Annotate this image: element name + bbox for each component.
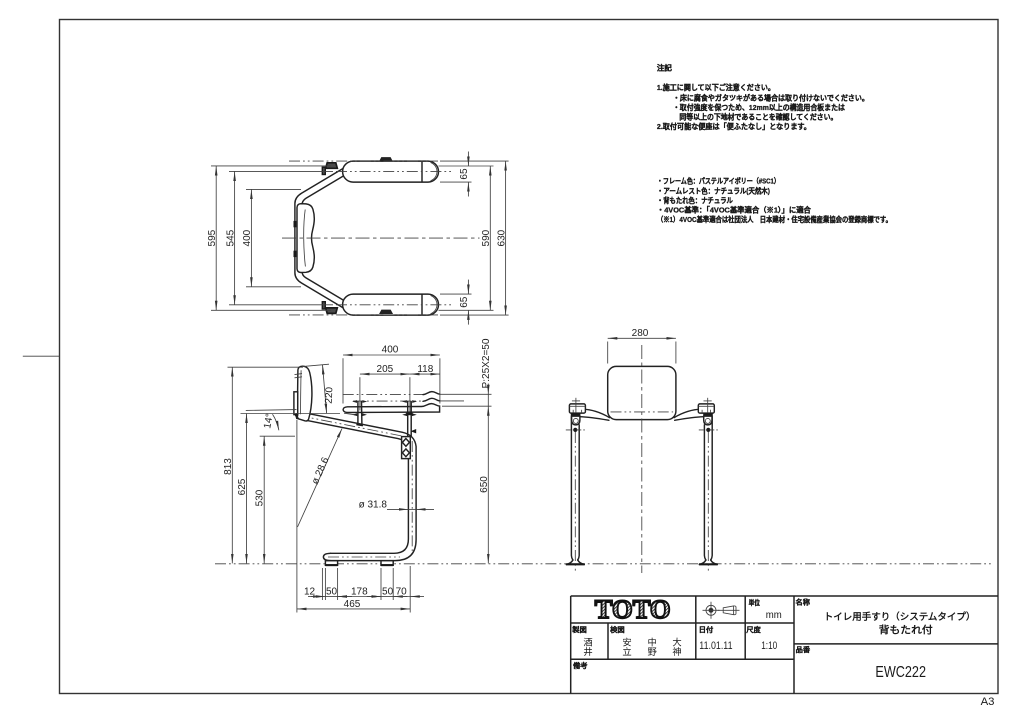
svg-text:1:10: 1:10 bbox=[761, 640, 777, 652]
svg-text:・背もたれ色：ナチュラル: ・背もたれ色：ナチュラル bbox=[657, 196, 734, 205]
svg-text:安: 安 bbox=[622, 636, 631, 647]
svg-text:立: 立 bbox=[622, 646, 631, 657]
svg-text:トイレ用手すり（システムタイプ）: トイレ用手すり（システムタイプ） bbox=[824, 611, 976, 623]
svg-text:・取付強度を保つため、12mm以上の構造用合板または: ・取付強度を保つため、12mm以上の構造用合板または bbox=[673, 103, 845, 112]
svg-text:205: 205 bbox=[377, 364, 394, 375]
svg-text:220: 220 bbox=[324, 386, 336, 404]
svg-text:650: 650 bbox=[479, 476, 490, 493]
svg-text:400: 400 bbox=[242, 229, 253, 246]
svg-text:尺度: 尺度 bbox=[746, 625, 761, 634]
svg-text:検図: 検図 bbox=[610, 625, 625, 634]
svg-text:813: 813 bbox=[223, 458, 234, 475]
svg-text:単位: 単位 bbox=[749, 598, 761, 607]
svg-text:野: 野 bbox=[648, 647, 657, 657]
svg-text:mm: mm bbox=[766, 609, 782, 621]
svg-text:TOTO: TOTO bbox=[595, 595, 671, 624]
svg-text:注記: 注記 bbox=[657, 64, 673, 73]
svg-text:12: 12 bbox=[304, 587, 316, 598]
svg-text:590: 590 bbox=[481, 229, 492, 246]
svg-text:大: 大 bbox=[672, 636, 681, 647]
svg-text:名称: 名称 bbox=[796, 597, 811, 606]
svg-text:・4VOC基準：「4VOC基準適合（※1）」に適合: ・4VOC基準：「4VOC基準適合（※1）」に適合 bbox=[657, 205, 812, 214]
svg-text:・フレーム色：パステルアイボリー（#SC1）: ・フレーム色：パステルアイボリー（#SC1） bbox=[657, 177, 780, 186]
svg-text:神: 神 bbox=[672, 646, 681, 657]
svg-text:530: 530 bbox=[255, 489, 266, 506]
svg-text:400: 400 bbox=[382, 345, 399, 356]
svg-text:65: 65 bbox=[459, 296, 470, 308]
svg-text:製図: 製図 bbox=[571, 625, 587, 634]
svg-text:品番: 品番 bbox=[796, 645, 811, 654]
svg-text:・アームレスト色：ナチュラル(天然木): ・アームレスト色：ナチュラル(天然木) bbox=[657, 186, 771, 195]
svg-text:70: 70 bbox=[396, 587, 408, 598]
svg-text:65: 65 bbox=[459, 168, 470, 180]
svg-text:EWC222: EWC222 bbox=[875, 664, 926, 681]
svg-text:A3: A3 bbox=[981, 696, 995, 708]
svg-text:118: 118 bbox=[417, 364, 433, 375]
svg-text:同等以上の下地材であることを確認してください。: 同等以上の下地材であることを確認してください。 bbox=[679, 112, 837, 121]
svg-text:ø 31.8: ø 31.8 bbox=[359, 500, 388, 511]
svg-text:備考: 備考 bbox=[573, 661, 588, 670]
svg-text:280: 280 bbox=[632, 328, 649, 339]
svg-text:（※1）4VOC基準適合は社団法人 日本建材・住宅設備産業協: （※1）4VOC基準適合は社団法人 日本建材・住宅設備産業協会の登録商標です。 bbox=[657, 215, 892, 224]
svg-text:中: 中 bbox=[648, 636, 657, 647]
svg-text:625: 625 bbox=[237, 478, 248, 495]
svg-text:1.施工に関して以下ご注意ください。: 1.施工に関して以下ご注意ください。 bbox=[657, 83, 775, 92]
svg-text:P:25X2=50: P:25X2=50 bbox=[480, 338, 492, 388]
svg-text:・床に腐食やガタツキがある場合は取り付けないでください。: ・床に腐食やガタツキがある場合は取り付けないでください。 bbox=[673, 93, 869, 102]
svg-text:50: 50 bbox=[326, 587, 338, 598]
svg-text:11.01.11: 11.01.11 bbox=[699, 640, 732, 652]
svg-text:465: 465 bbox=[344, 599, 361, 610]
svg-text:2.取付可能な便座は「便ふたなし」となります。: 2.取付可能な便座は「便ふたなし」となります。 bbox=[657, 122, 811, 131]
svg-text:178: 178 bbox=[351, 587, 368, 598]
svg-text:50: 50 bbox=[382, 587, 394, 598]
svg-text:酒: 酒 bbox=[583, 637, 592, 647]
svg-text:630: 630 bbox=[496, 229, 507, 246]
svg-text:背もたれ付: 背もたれ付 bbox=[879, 624, 933, 637]
svg-text:井: 井 bbox=[583, 646, 592, 657]
svg-text:545: 545 bbox=[225, 229, 236, 246]
svg-text:595: 595 bbox=[207, 229, 218, 246]
svg-text:日付: 日付 bbox=[699, 625, 714, 634]
